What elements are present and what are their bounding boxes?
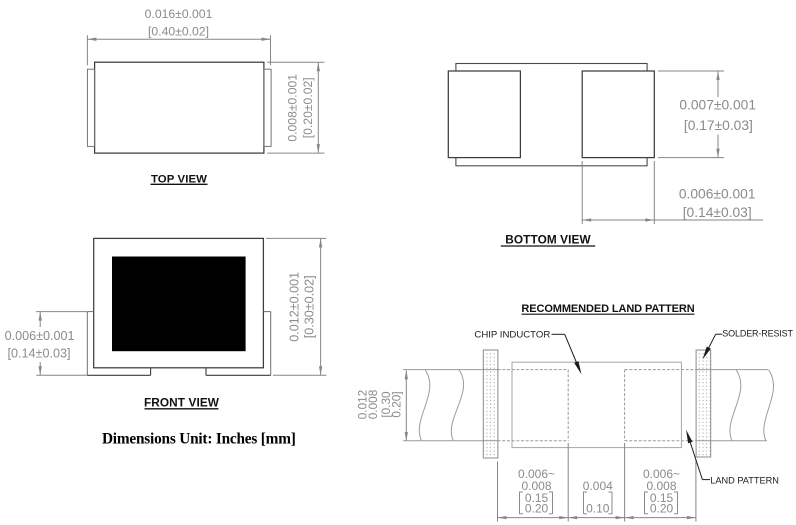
- svg-text:[0.14±0.03]: [0.14±0.03]: [8, 347, 71, 361]
- svg-text:[0.30±0.02]: [0.30±0.02]: [303, 275, 317, 338]
- svg-text:LAND PATTERN: LAND PATTERN: [710, 476, 779, 486]
- svg-text:0.20: 0.20: [525, 502, 549, 516]
- svg-text:[0.20±0.02]: [0.20±0.02]: [301, 77, 315, 138]
- svg-text:SOLDER-RESIST: SOLDER-RESIST: [722, 328, 793, 338]
- svg-text:0.008±0.001: 0.008±0.001: [286, 74, 300, 142]
- svg-text:0.20: 0.20: [650, 502, 674, 516]
- svg-text:0.007±0.001: 0.007±0.001: [679, 98, 756, 113]
- svg-text:0.004: 0.004: [583, 479, 613, 493]
- svg-text:0.012±0.001: 0.012±0.001: [288, 272, 302, 342]
- svg-text:FRONT VIEW: FRONT VIEW: [144, 396, 220, 410]
- svg-text:0.006±0.001: 0.006±0.001: [679, 187, 756, 202]
- svg-text:Dimensions Unit: Inches [mm]: Dimensions Unit: Inches [mm]: [102, 431, 296, 448]
- svg-text:0.008: 0.008: [366, 389, 380, 419]
- svg-text:RECOMMENDED LAND PATTERN: RECOMMENDED LAND PATTERN: [521, 303, 694, 315]
- svg-text:0.10: 0.10: [586, 502, 610, 516]
- svg-text:BOTTOM VIEW: BOTTOM VIEW: [505, 232, 591, 246]
- svg-text:0.20]: 0.20]: [390, 391, 404, 417]
- svg-text:[0.40±0.02]: [0.40±0.02]: [148, 24, 209, 38]
- svg-text:CHIP INDUCTOR: CHIP INDUCTOR: [474, 329, 550, 340]
- svg-text:0.006±0.001: 0.006±0.001: [5, 329, 75, 343]
- svg-text:[0.17±0.03]: [0.17±0.03]: [684, 118, 753, 133]
- svg-text:[0.14±0.03]: [0.14±0.03]: [683, 205, 752, 220]
- svg-text:0.016±0.001: 0.016±0.001: [145, 7, 213, 21]
